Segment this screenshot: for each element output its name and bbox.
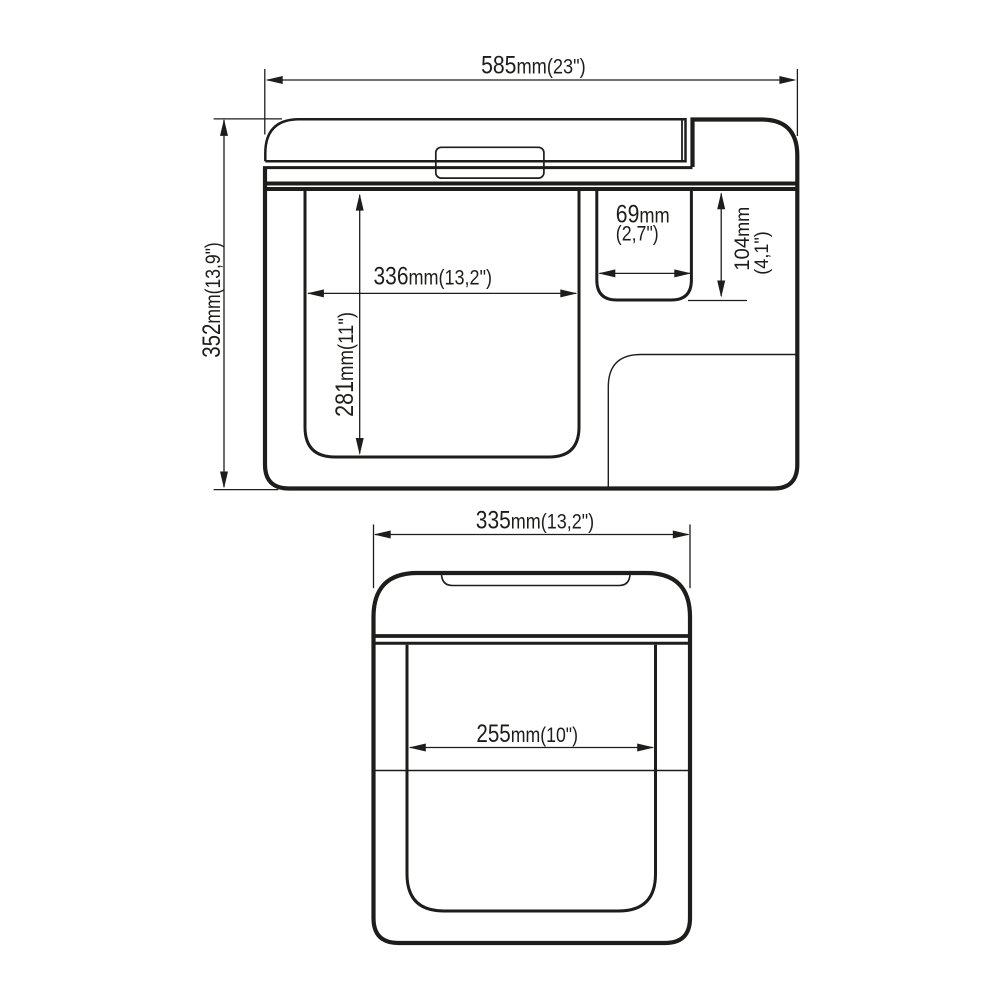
svg-text:336mm(13,2"): 336mm(13,2")	[374, 263, 493, 291]
svg-text:352mm(13,9"): 352mm(13,9")	[198, 242, 226, 358]
svg-text:255mm(10"): 255mm(10")	[476, 720, 578, 748]
svg-text:585mm(23"): 585mm(23")	[481, 51, 586, 79]
svg-text:(4,1"): (4,1")	[752, 231, 773, 275]
svg-text:335mm(13,2"): 335mm(13,2")	[476, 507, 594, 535]
svg-text:104mm: 104mm	[730, 207, 754, 271]
svg-text:(2,7"): (2,7")	[616, 221, 659, 245]
svg-text:281mm(11"): 281mm(11")	[331, 312, 359, 417]
